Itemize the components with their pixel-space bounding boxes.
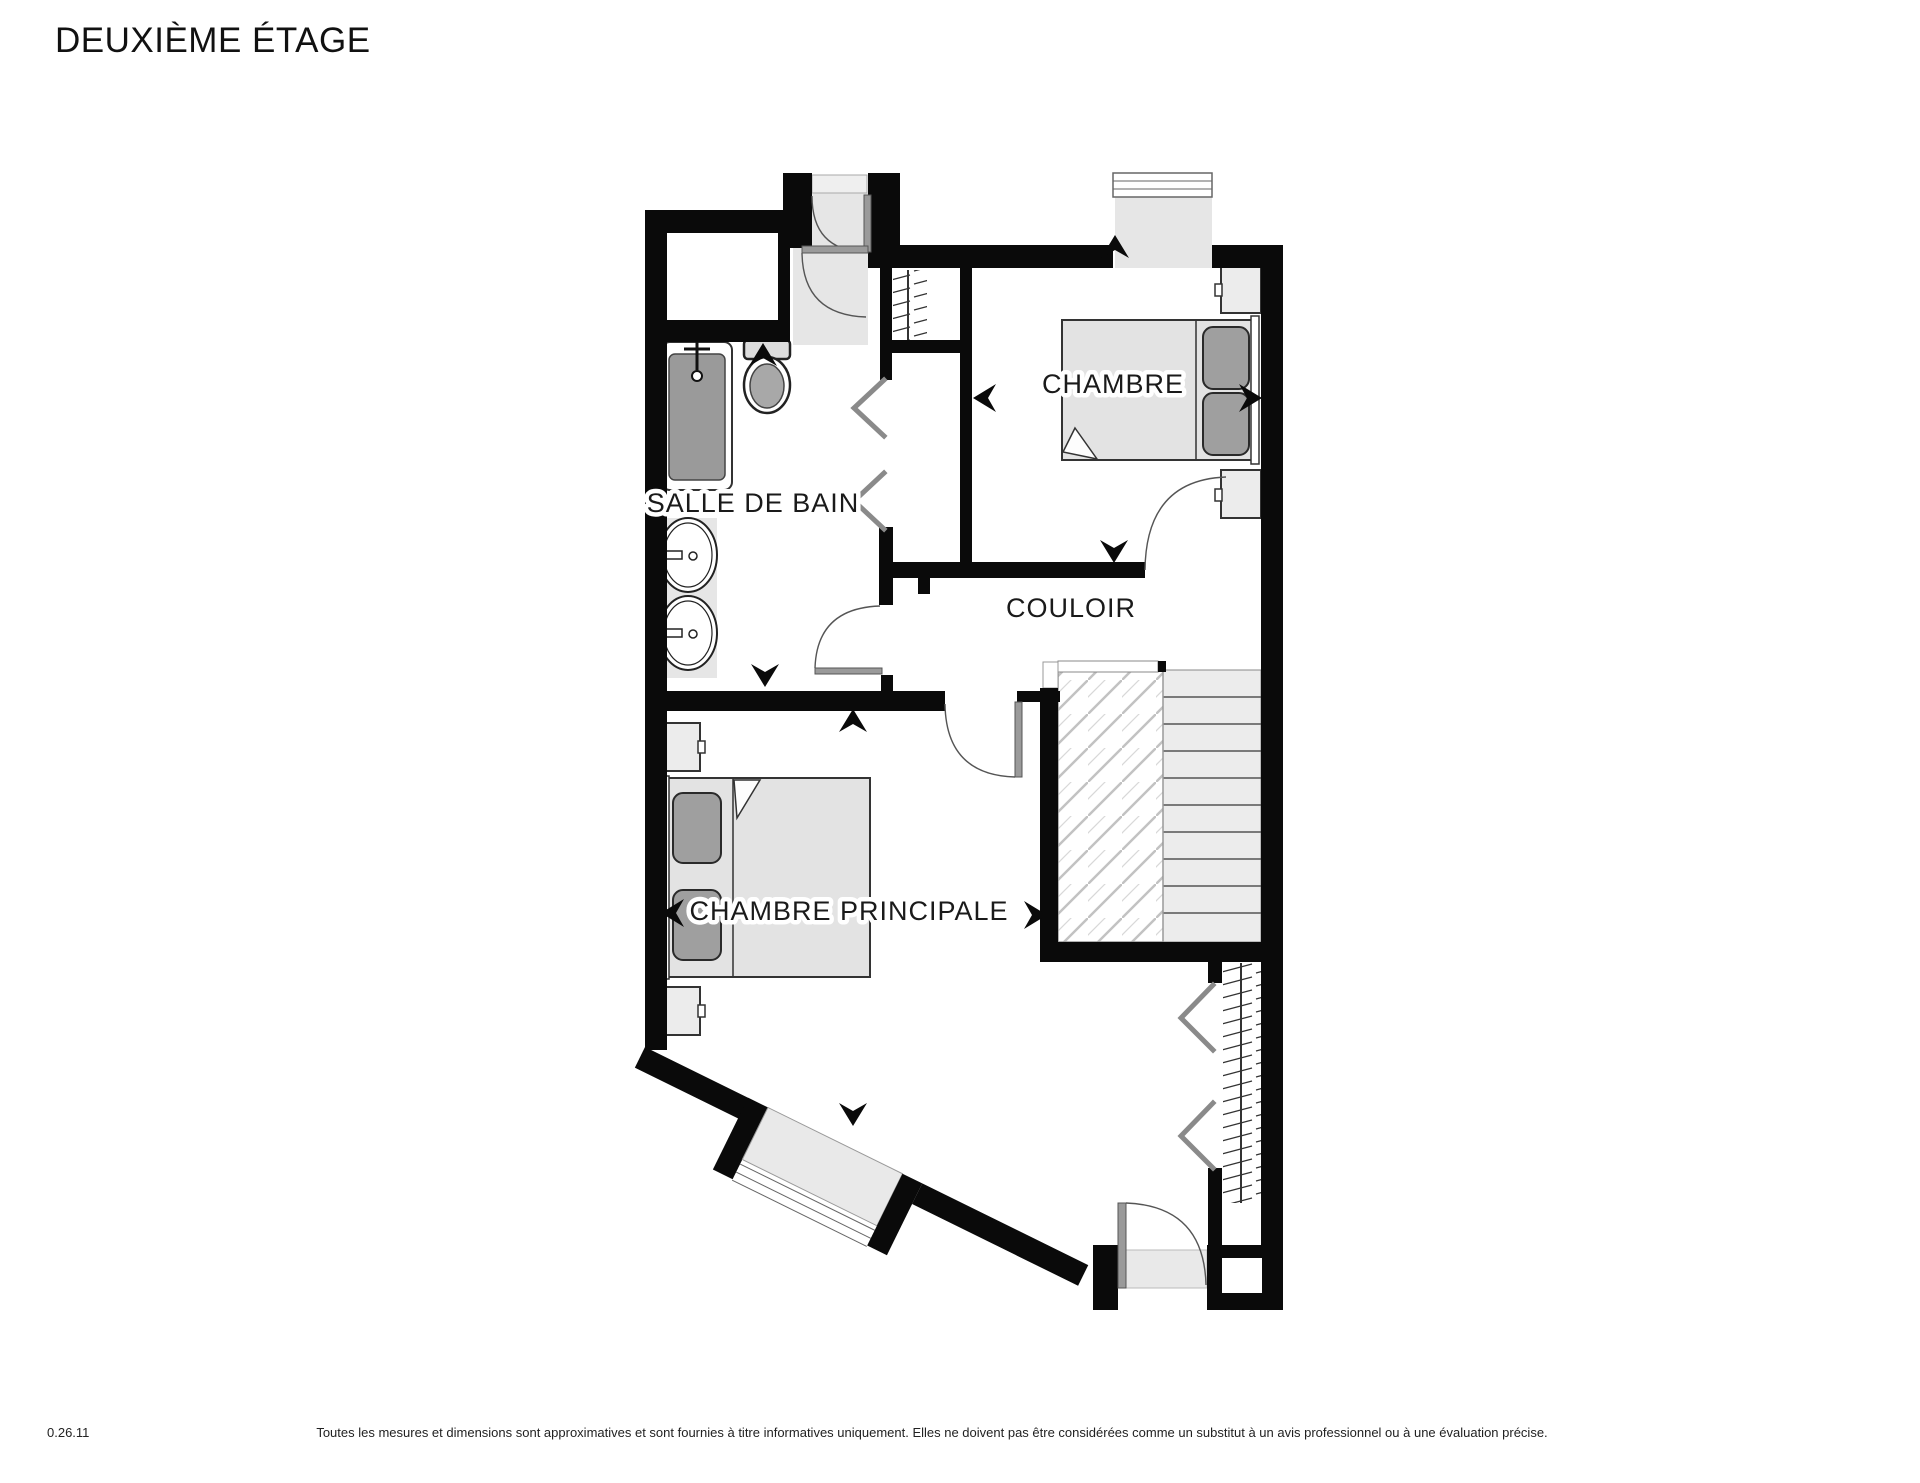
stair-landing-edge	[1058, 661, 1158, 672]
sink	[659, 596, 717, 670]
page-title: DEUXIÈME ÉTAGE	[55, 21, 371, 60]
left-arrow-icon	[973, 384, 996, 412]
up-arrow-icon	[839, 709, 867, 732]
pillow	[673, 793, 721, 863]
stair-landing-post	[1158, 661, 1166, 672]
nightstand	[1215, 265, 1261, 313]
windows	[1113, 173, 1212, 197]
stair-newel	[1043, 662, 1058, 688]
hallway-bedroom-door	[1145, 477, 1226, 570]
disclaimer-text: Toutes les mesures et dimensions sont ap…	[316, 1425, 1547, 1440]
hallway-master-door	[945, 702, 1022, 777]
room-label-bedroom: CHAMBRE	[1042, 369, 1184, 399]
stair-void-hatch	[1058, 670, 1163, 942]
down-arrow-icon	[1100, 540, 1128, 563]
stair-treads	[1163, 670, 1261, 942]
bathtub	[662, 342, 732, 490]
pillow	[1203, 393, 1249, 455]
bathroom-door	[815, 606, 882, 674]
corner-alcove	[1222, 1258, 1262, 1293]
angled-wall-section	[609, 1047, 1088, 1338]
down-arrow-icon	[839, 1103, 867, 1126]
room-label-bathroom: SALLE DE BAIN	[647, 488, 860, 518]
bottom-door-threshold	[1118, 1250, 1207, 1288]
floor-plan-drawing: SALLE DE BAIN CHAMBRE COULOIR CHAMBRE PR…	[0, 0, 1920, 1483]
entry-threshold	[812, 175, 867, 193]
pillow	[1203, 327, 1249, 389]
floor-plan-page: SALLE DE BAIN CHAMBRE COULOIR CHAMBRE PR…	[0, 0, 1920, 1483]
sink	[659, 518, 717, 592]
room-label-hallway: COULOIR	[1006, 593, 1136, 623]
upper-closet-rail-ticks	[893, 270, 927, 340]
room-label-master-bedroom: CHAMBRE PRINCIPALE	[689, 896, 1008, 926]
staircase	[1043, 661, 1261, 942]
headboard	[1251, 316, 1259, 464]
version-label: 0.26.11	[47, 1425, 89, 1440]
wardrobe-bifold-door	[1181, 985, 1213, 1168]
bedroom-window	[1113, 173, 1212, 197]
bedroom-window-recess	[1115, 196, 1212, 268]
down-arrow-icon	[751, 664, 779, 687]
footer: 0.26.11 Toutes les mesures et dimensions…	[47, 1425, 1548, 1440]
bay-window-sill	[742, 1107, 902, 1225]
master-bedroom-furniture	[660, 723, 870, 1035]
